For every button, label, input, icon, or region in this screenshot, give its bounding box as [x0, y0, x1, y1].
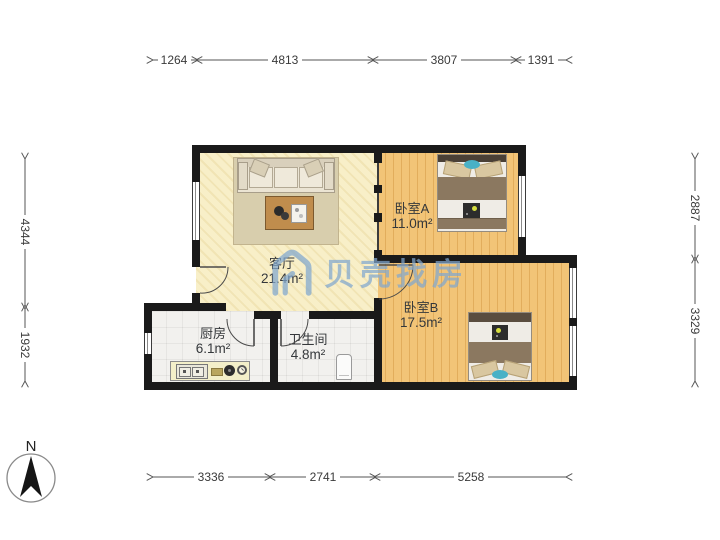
window [192, 182, 200, 240]
dim-value: 4344 [18, 219, 32, 246]
bed-b-device [492, 325, 508, 340]
wall [144, 303, 152, 333]
bed-b [468, 312, 532, 381]
room-label-kitchen: 厨房 6.1m² [168, 326, 258, 356]
dim-right-labels: 2887 3329 [688, 191, 702, 338]
kitchen-counter [170, 361, 250, 381]
room-name: 卧室A [367, 201, 457, 216]
sofa [237, 158, 335, 193]
wall [144, 382, 577, 390]
dim-bottom-labels: 3336 2741 5258 [194, 470, 488, 484]
room-name: 卫生间 [263, 332, 353, 347]
watermark-text: 贝壳找房 [324, 249, 468, 294]
bed-b-blanket [469, 342, 531, 363]
kitchen-sink [176, 364, 208, 379]
wall [309, 311, 378, 319]
table-tray [291, 204, 307, 223]
north-arrow-icon [20, 456, 42, 497]
dim-value: 3807 [431, 53, 458, 67]
compass: N [7, 438, 55, 502]
room-name: 卧室B [376, 300, 466, 315]
dim-value: 2887 [688, 195, 702, 222]
wall [518, 237, 526, 263]
bed-a-device [463, 203, 480, 218]
wall [144, 303, 226, 311]
room-label-bathroom: 卫生间 4.8m² [263, 332, 353, 362]
coffee-table [265, 196, 314, 230]
sofa-cushion [274, 167, 298, 188]
wall [518, 145, 526, 176]
compass-circle [7, 454, 55, 502]
room-label-bedroom-a: 卧室A 11.0m² [367, 201, 457, 231]
watermark: 贝壳找房 [268, 243, 468, 299]
bed-b-footboard [469, 313, 531, 322]
dim-value: 2741 [310, 470, 337, 484]
dim-value: 3336 [198, 470, 225, 484]
window [518, 176, 526, 237]
stove-burner [237, 365, 247, 375]
dim-value: 1264 [161, 53, 188, 67]
dim-value: 1391 [528, 53, 555, 67]
wall [254, 311, 281, 319]
window [569, 268, 577, 318]
window [144, 333, 152, 354]
dim-value: 5258 [458, 470, 485, 484]
dim-left-labels: 4344 1932 [18, 215, 32, 362]
beike-logo-icon [268, 246, 316, 296]
compass-label: N [26, 438, 37, 455]
wall [374, 153, 382, 163]
table-decor-vase [281, 212, 289, 220]
window [569, 326, 577, 376]
room-name: 厨房 [168, 326, 258, 341]
dim-value: 1932 [18, 332, 32, 359]
bed-a-blanket [438, 177, 506, 200]
room-label-bedroom-b: 卧室B 17.5m² [376, 300, 466, 330]
wall [192, 240, 200, 267]
wall [569, 376, 577, 390]
floor-plan: 客厅 21.4m² 卧室A 11.0m² 卧室B 17.5m² 厨房 6.1m²… [0, 0, 720, 540]
wall [192, 145, 526, 153]
kitchen-small-appliance [211, 368, 223, 376]
dim-value: 4813 [272, 53, 299, 67]
dim-value: 3329 [688, 308, 702, 335]
stove-burner [224, 365, 235, 376]
bed-b-accent-pillow [492, 370, 508, 379]
room-area: 11.0m² [367, 216, 457, 231]
wall [374, 185, 382, 193]
sofa-armrest-left [238, 162, 248, 190]
wall [192, 145, 200, 182]
room-area: 17.5m² [376, 315, 466, 330]
bed-a-accent-pillow [464, 160, 480, 169]
room-area: 4.8m² [263, 347, 353, 362]
wall [569, 318, 577, 326]
room-area: 6.1m² [168, 341, 258, 356]
sofa-armrest-right [324, 162, 334, 190]
dim-top-labels: 1264 4813 3807 1391 [158, 53, 558, 67]
